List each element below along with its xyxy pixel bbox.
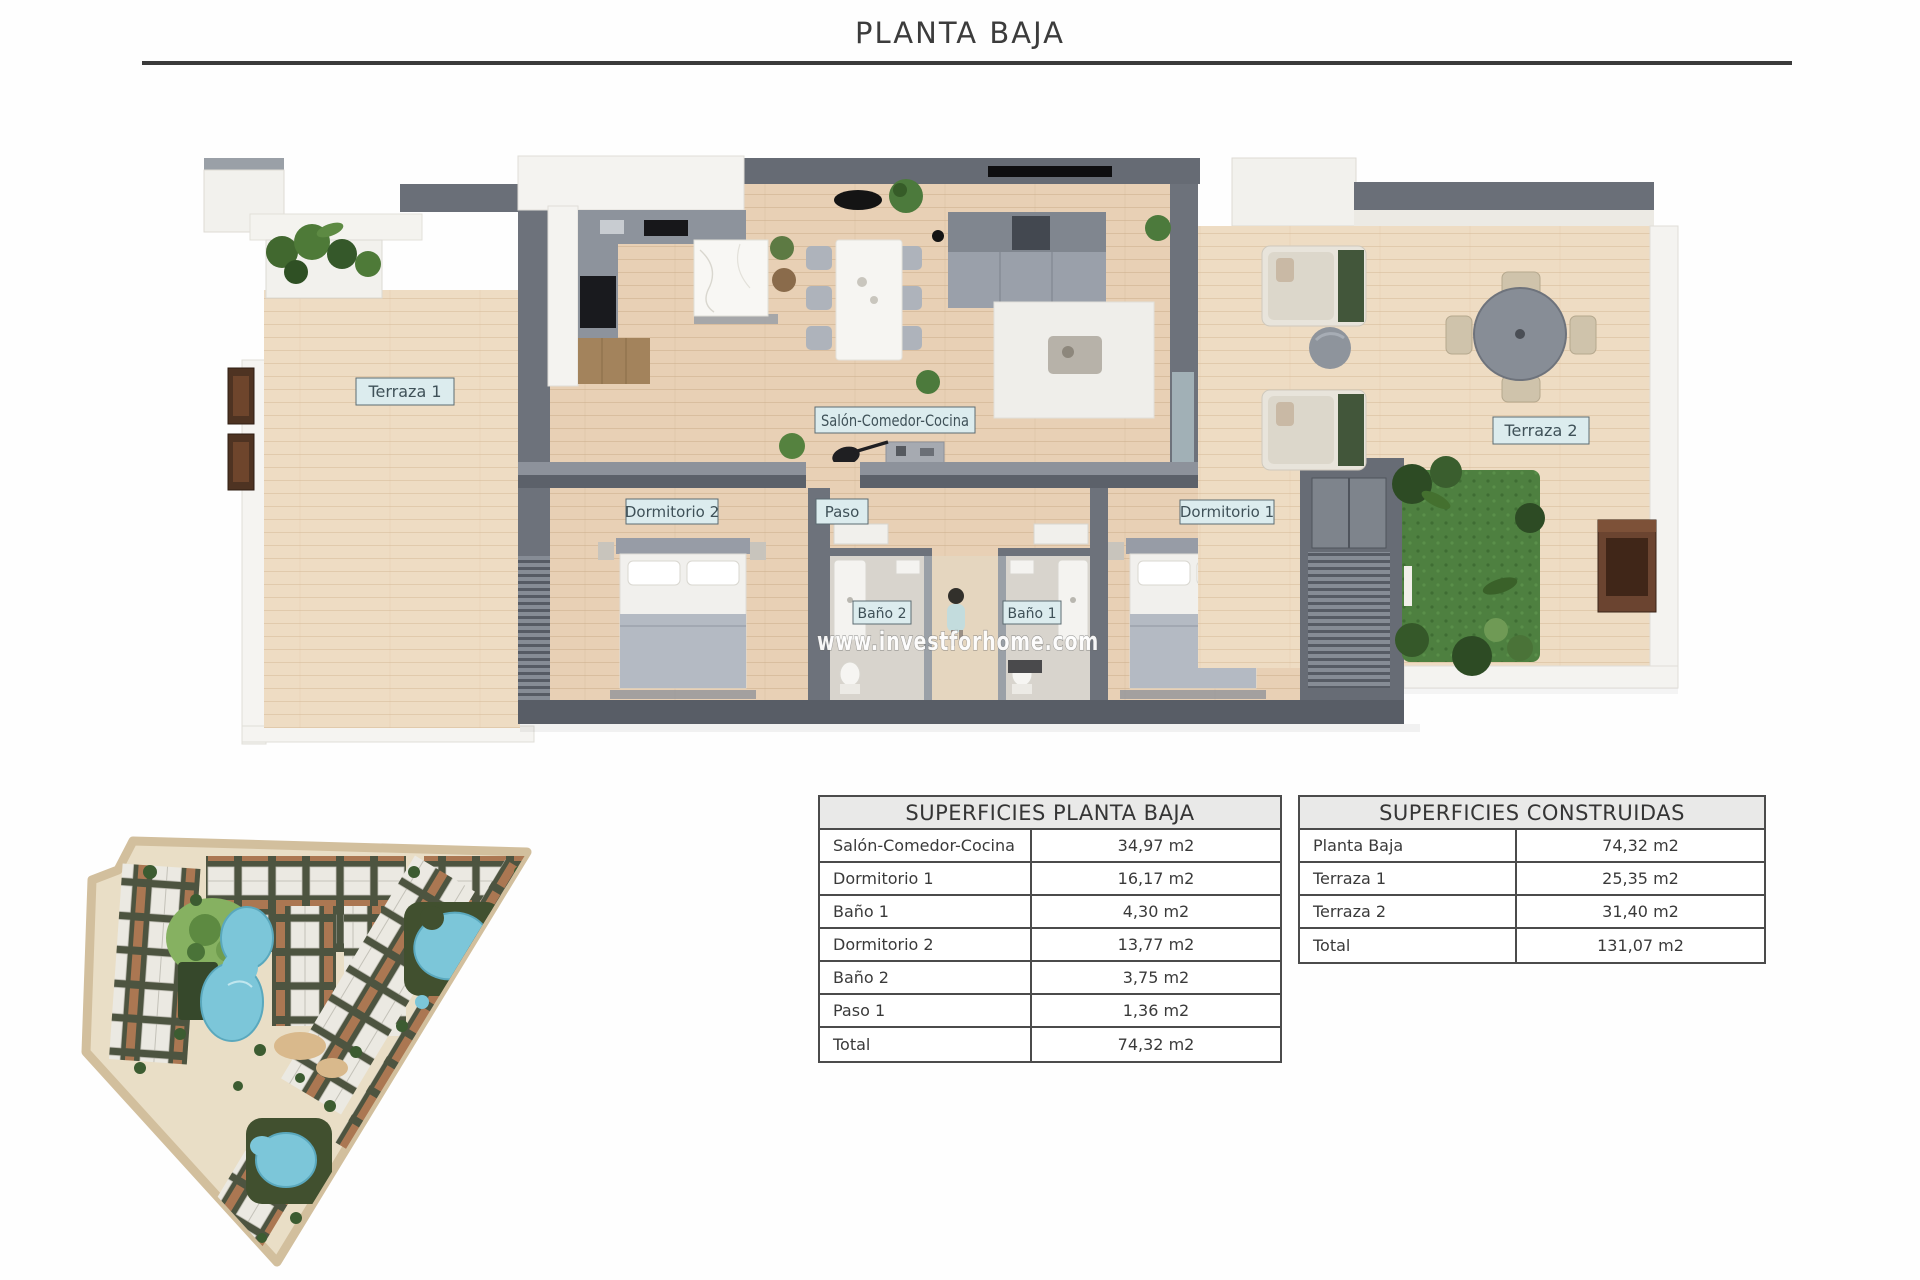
table-row: Total 74,32 m2 (820, 1028, 1280, 1061)
label-dormitorio-2: Dormitorio 2 (625, 499, 719, 524)
row-value: 25,35 m2 (1517, 863, 1764, 894)
bottom-wall (518, 700, 1404, 724)
row-value: 3,75 m2 (1032, 962, 1280, 993)
sand-area-1 (274, 1032, 326, 1060)
rattan-stool (772, 268, 796, 292)
paso-doorway (806, 462, 860, 488)
plant-living-mid (916, 370, 940, 394)
pool-south (246, 1118, 332, 1204)
floor-plan-page: PLANTA BAJA (0, 0, 1920, 1280)
coffee-table (1048, 336, 1102, 374)
svg-text:Dormitorio 1: Dormitorio 1 (1180, 503, 1274, 521)
plant-on-island (770, 236, 794, 260)
svg-text:Baño 1: Baño 1 (1008, 606, 1057, 622)
sand-area-2 (316, 1058, 348, 1078)
svg-text:Dormitorio 2: Dormitorio 2 (625, 503, 719, 521)
table-row: Dormitorio 2 13,77 m2 (820, 929, 1280, 962)
label-terraza-1: Terraza 1 (356, 378, 454, 405)
plant-living-top (889, 179, 923, 213)
lounge-chair-2 (1262, 390, 1366, 470)
svg-text:Salón-Comedor-Cocina: Salón-Comedor-Cocina (821, 411, 969, 430)
table-row: Baño 2 3,75 m2 (820, 962, 1280, 995)
row-value: 74,32 m2 (1517, 830, 1764, 861)
apartment-plan: Terraza 1 Salón-Comedor-Cocina Dormitori… (204, 156, 1678, 744)
table-title: SUPERFICIES PLANTA BAJA (820, 797, 1280, 830)
row-value: 31,40 m2 (1517, 896, 1764, 927)
plant-terrace-edge (1145, 215, 1171, 241)
lounge-chair-1 (1262, 246, 1366, 326)
dormitorio-1-window-wall (1300, 458, 1404, 718)
plant-near-console (779, 433, 805, 459)
label-paso: Paso (816, 499, 868, 524)
tv (988, 166, 1112, 177)
row-label: Total (820, 1028, 1032, 1061)
shutter-dormitorio-1 (1308, 552, 1390, 688)
table-row: Total 131,07 m2 (1300, 929, 1764, 962)
row-label: Salón-Comedor-Cocina (820, 830, 1032, 861)
pendant-lamp (834, 190, 882, 210)
row-value: 74,32 m2 (1032, 1028, 1280, 1061)
svg-text:Baño 2: Baño 2 (858, 606, 907, 622)
dining-table (806, 240, 922, 360)
shutter-dormitorio-2 (518, 556, 550, 700)
watermark: www.investforhome.com (817, 627, 1099, 657)
label-dormitorio-1: Dormitorio 1 (1180, 500, 1274, 524)
row-label: Paso 1 (820, 995, 1032, 1026)
row-value: 131,07 m2 (1517, 929, 1764, 962)
table-row: Salón-Comedor-Cocina 34,97 m2 (820, 830, 1280, 863)
table-row: Terraza 2 31,40 m2 (1300, 896, 1764, 929)
kitchen-island (694, 240, 778, 324)
fridge (580, 276, 616, 328)
row-value: 1,36 m2 (1032, 995, 1280, 1026)
cooktop (644, 220, 688, 236)
row-label: Planta Baja (1300, 830, 1517, 861)
label-terraza-2: Terraza 2 (1493, 417, 1589, 444)
row-label: Baño 2 (820, 962, 1032, 993)
terrace-door-frame-right (1598, 520, 1656, 612)
row-label: Total (1300, 929, 1517, 962)
floor-plan-illustration: Terraza 1 Salón-Comedor-Cocina Dormitori… (0, 0, 1920, 1280)
bed-dormitorio-2 (598, 538, 766, 699)
row-label: Dormitorio 2 (820, 929, 1032, 960)
row-value: 13,77 m2 (1032, 929, 1280, 960)
row-label: Terraza 2 (1300, 896, 1517, 927)
table-superficies-construidas: SUPERFICIES CONSTRUIDAS Planta Baja 74,3… (1298, 795, 1766, 964)
label-bano-1: Baño 1 (1003, 601, 1061, 624)
row-value: 16,17 m2 (1032, 863, 1280, 894)
table-row: Planta Baja 74,32 m2 (1300, 830, 1764, 863)
table-row: Terraza 1 25,35 m2 (1300, 863, 1764, 896)
label-bano-2: Baño 2 (853, 601, 911, 624)
paso-floor (830, 488, 1090, 556)
terrace-garden (1392, 456, 1545, 676)
table-superficies-planta-baja: SUPERFICIES PLANTA BAJA Salón-Comedor-Co… (818, 795, 1282, 1063)
row-label: Terraza 1 (1300, 863, 1517, 894)
label-salon-comedor-cocina: Salón-Comedor-Cocina (815, 407, 975, 433)
row-value: 4,30 m2 (1032, 896, 1280, 927)
svg-text:Paso: Paso (825, 503, 860, 521)
ceiling-spot (932, 230, 944, 242)
table-row: Paso 1 1,36 m2 (820, 995, 1280, 1028)
room-terraza-2 (1145, 158, 1678, 718)
svg-text:Terraza 2: Terraza 2 (1503, 421, 1577, 440)
row-label: Baño 1 (820, 896, 1032, 927)
site-plan (86, 841, 569, 1280)
table-row: Dormitorio 1 16,17 m2 (820, 863, 1280, 896)
svg-text:Terraza 1: Terraza 1 (367, 382, 441, 401)
row-value: 34,97 m2 (1032, 830, 1280, 861)
table-title: SUPERFICIES CONSTRUIDAS (1300, 797, 1764, 830)
row-label: Dormitorio 1 (820, 863, 1032, 894)
table-row: Baño 1 4,30 m2 (820, 896, 1280, 929)
room-terraza-1 (204, 158, 534, 744)
kitchen-sink (600, 220, 624, 234)
